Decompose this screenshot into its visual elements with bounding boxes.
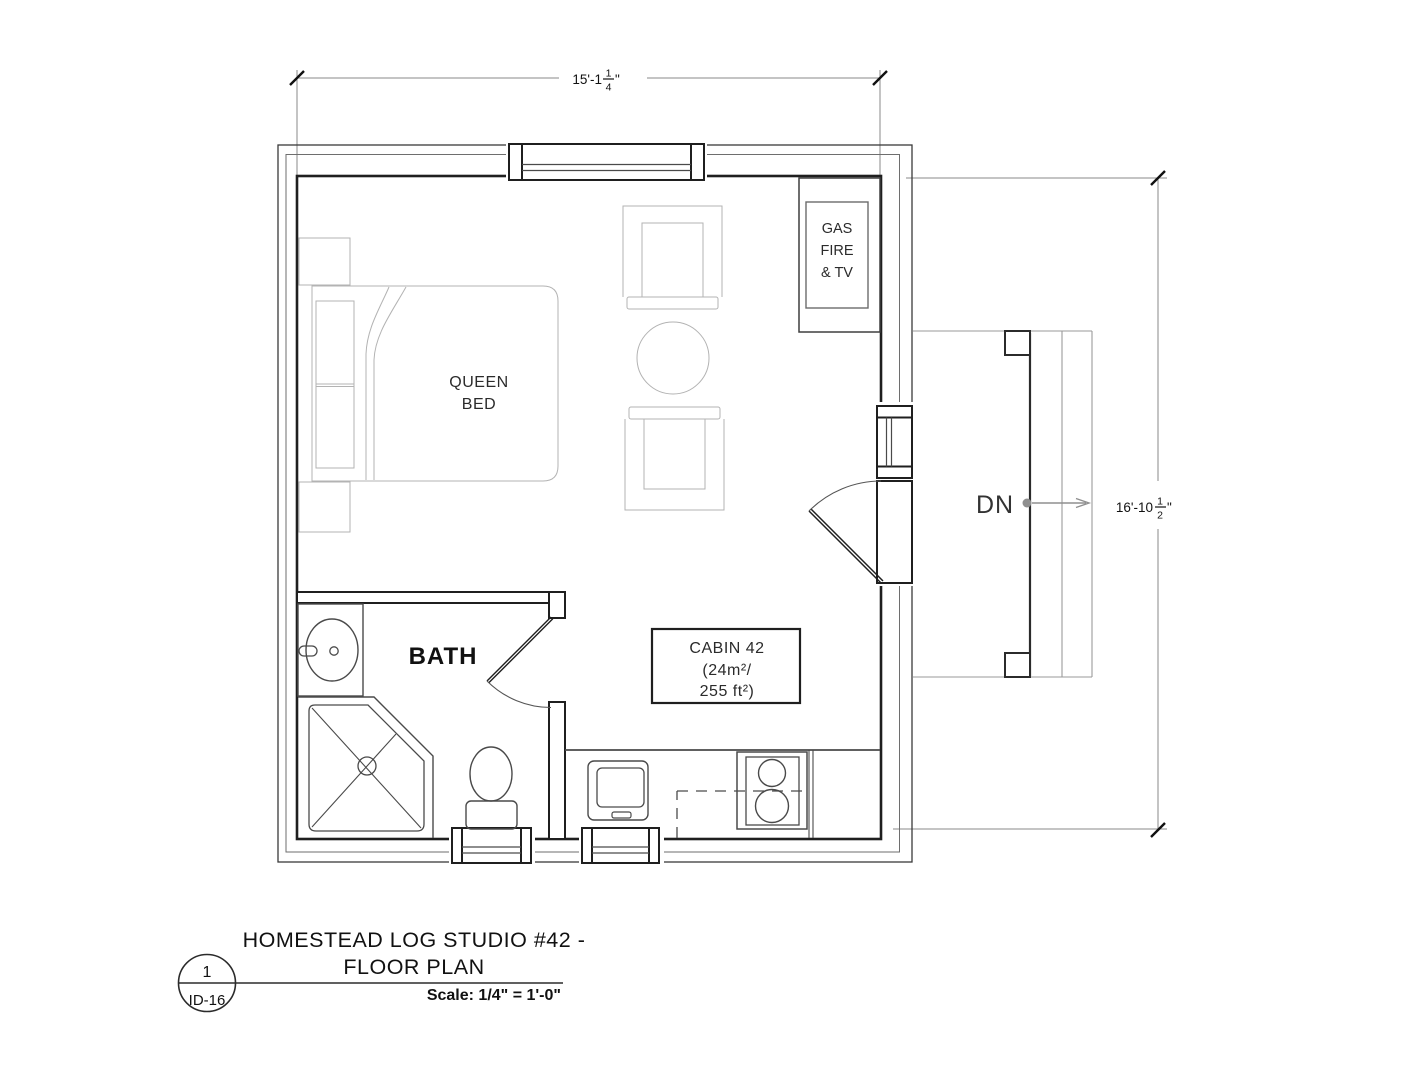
- gas-fire-label-line3: & TV: [821, 265, 853, 281]
- shower-cross-lines: [312, 708, 421, 828]
- floor-plan-sheet: DN 15'-1 1 4 " 16'-10 1 2 ": [0, 0, 1403, 1087]
- armchair-bottom: [625, 407, 724, 510]
- bathroom: BATH: [297, 592, 565, 839]
- bath-door: [487, 617, 553, 708]
- dimension-height-text: 16'-10: [1116, 500, 1153, 515]
- bathroom-sink: [298, 604, 363, 696]
- entry-door-frame: [877, 481, 912, 583]
- dimension-width-frac-den: 4: [606, 82, 612, 94]
- drawing-number: 1: [203, 964, 212, 981]
- bed-sheet-fold: [366, 287, 406, 480]
- toilet: [466, 747, 517, 829]
- drawing-title-line1: HOMESTEAD LOG STUDIO #42 -: [243, 928, 586, 952]
- window-bottom-right: [579, 825, 664, 868]
- deck: DN: [913, 331, 1092, 677]
- dimension-height: 16'-10 1 2 ": [893, 171, 1172, 837]
- bath-door-swing-arc: [487, 681, 551, 708]
- window-top: [506, 139, 707, 184]
- title-block: 1 ID-16 HOMESTEAD LOG STUDIO #42 - FLOOR…: [178, 928, 585, 1012]
- cabin-label-line2: (24m²/: [702, 662, 751, 679]
- sink-drain: [330, 647, 338, 655]
- dimension-width-text: 15'-1: [572, 72, 602, 87]
- nightstand: [299, 238, 350, 285]
- sheet-id: ID-16: [189, 992, 226, 1009]
- down-label: DN: [976, 491, 1014, 519]
- deck-post: [1005, 653, 1030, 677]
- corner-shower: [298, 697, 433, 838]
- area-label-box: CABIN 42 (24m²/ 255 ft²): [652, 629, 800, 703]
- bath-partition-wall-north: [297, 592, 565, 603]
- dimension-height-unit: ": [1167, 500, 1172, 515]
- drawing-title-line2: FLOOR PLAN: [343, 955, 484, 979]
- dimension-width-frac-num: 1: [606, 68, 612, 80]
- window-right: [873, 402, 918, 482]
- bath-label: BATH: [409, 643, 478, 670]
- toilet-bowl: [470, 747, 512, 801]
- entry-door: [809, 480, 918, 586]
- bath-partition-wall-east-upper: [549, 592, 565, 618]
- armchair-top: [623, 206, 722, 309]
- sink-basin: [306, 619, 358, 681]
- toilet-tank: [466, 801, 517, 829]
- window-jamb: [521, 828, 531, 863]
- scale-label: Scale: 1/4" = 1'-0": [427, 987, 561, 1004]
- entry-door-leaf: [809, 509, 883, 583]
- headboard-divider: [316, 384, 354, 387]
- wall-inner-face: [297, 176, 881, 839]
- under-counter-appliance-dashed: [677, 791, 809, 838]
- bed-label-line2: BED: [462, 396, 496, 413]
- window-jamb: [509, 144, 522, 180]
- kitchenette: [565, 750, 880, 838]
- window-jamb: [452, 828, 462, 863]
- nightstand: [299, 482, 350, 532]
- burner: [756, 790, 789, 823]
- window-jamb: [582, 828, 592, 863]
- bath-door-leaf: [487, 617, 553, 683]
- cabin-label-line1: CABIN 42: [689, 640, 764, 657]
- bath-partition-wall-east-lower: [549, 702, 565, 839]
- deck-post: [1005, 331, 1030, 355]
- round-table: [637, 322, 709, 394]
- window-jamb: [649, 828, 659, 863]
- dimension-width-unit: ": [615, 72, 620, 87]
- gas-fire-label-line2: FIRE: [820, 243, 853, 259]
- burner: [759, 760, 786, 787]
- window-jamb: [691, 144, 704, 180]
- sitting-area: [623, 206, 724, 510]
- down-arrow-dot: [1023, 499, 1032, 508]
- bed-label-line1: QUEEN: [449, 374, 508, 391]
- queen-bed: QUEEN BED: [299, 238, 558, 532]
- countertop-appliance: [588, 761, 648, 820]
- counter-divider: [809, 750, 813, 838]
- gas-fire-label-line1: GAS: [822, 221, 853, 237]
- down-direction-annotation: DN: [976, 491, 1089, 519]
- floor-plan-canvas: DN 15'-1 1 4 " 16'-10 1 2 ": [0, 0, 1403, 1087]
- entry-door-swing-arc: [809, 481, 881, 511]
- dimension-height-frac-num: 1: [1157, 496, 1163, 508]
- dimension-height-frac-den: 2: [1157, 510, 1163, 522]
- sink-faucet-icon: [299, 646, 317, 656]
- cabin-label-line3: 255 ft²): [700, 683, 755, 700]
- window-bottom-left: [449, 825, 535, 868]
- gas-fireplace-tv-unit: GAS FIRE & TV: [799, 178, 880, 332]
